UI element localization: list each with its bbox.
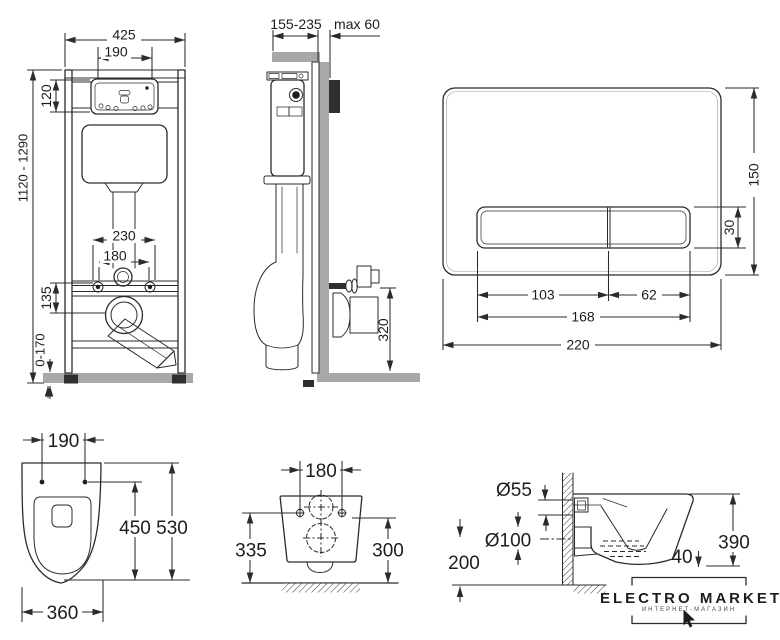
installation-diagram: 425 190 120 1120 - 1290 230 180 135 bbox=[0, 0, 780, 640]
dim-fixing-spread: 230 bbox=[112, 228, 136, 244]
dim-frame-overall-width: 425 bbox=[112, 27, 136, 43]
flush-plate-dimensions: 150 30 103 62 168 220 bbox=[443, 88, 762, 353]
dim-outlet-diameter: Ø100 bbox=[485, 531, 531, 552]
frame-foot-right bbox=[172, 375, 186, 384]
dim-rear-height-right: 300 bbox=[372, 541, 404, 562]
brand-logo: ELECTRO MARKET ИНТЕРНЕТ-МАГАЗИН bbox=[600, 578, 780, 628]
ceiling-bracket bbox=[272, 52, 320, 62]
logo-brand-text: ELECTRO MARKET bbox=[600, 590, 780, 607]
dim-drain-drop: 135 bbox=[38, 286, 54, 310]
threaded-rod bbox=[329, 283, 346, 289]
technical-drawing-sheet: 425 190 120 1120 - 1290 230 180 135 bbox=[0, 0, 780, 640]
dim-bowl-total-depth: 530 bbox=[156, 518, 188, 539]
bowl-trap-bump bbox=[307, 562, 333, 573]
dim-frame-upper-opening: 190 bbox=[104, 44, 128, 60]
flush-buttons bbox=[477, 207, 690, 248]
dim-plate-width: 220 bbox=[566, 337, 590, 353]
water-inlet-port bbox=[114, 268, 132, 286]
dim-buttons-width: 168 bbox=[571, 309, 595, 325]
dim-clearance: 40 bbox=[671, 547, 692, 568]
water-level bbox=[600, 541, 646, 557]
dim-fixing-spacing: 180 bbox=[103, 248, 127, 264]
logo-tagline-text: ИНТЕРНЕТ-МАГАЗИН bbox=[642, 607, 736, 613]
bowl-funnel bbox=[601, 506, 667, 550]
bowl-opening bbox=[34, 497, 91, 574]
inlet-connector bbox=[357, 266, 371, 287]
dim-button-left-width: 103 bbox=[531, 287, 555, 303]
dim-leg-adjust: 0-170 bbox=[33, 333, 48, 366]
dim-body-height: 390 bbox=[718, 533, 750, 554]
frame-rail-side bbox=[312, 62, 319, 373]
floor-section bbox=[317, 373, 420, 382]
flush-bend-pipe bbox=[254, 184, 303, 370]
wall-hatch bbox=[563, 473, 574, 585]
cistern-front bbox=[82, 125, 167, 183]
frame-front-view: 425 190 120 1120 - 1290 230 180 135 bbox=[16, 27, 194, 400]
frame-side-structure bbox=[254, 52, 420, 387]
flush-plate-view: 150 30 103 62 168 220 bbox=[443, 88, 762, 353]
dim-depth-range: 155-235 bbox=[270, 16, 322, 32]
bowl-side-dimensions: Ø55 Ø100 200 390 40 bbox=[448, 480, 752, 602]
dim-outlet-height: 320 bbox=[375, 318, 391, 342]
dim-wall-offset: max 60 bbox=[334, 16, 380, 32]
button-divider bbox=[608, 208, 611, 247]
dim-plate-height: 150 bbox=[746, 163, 762, 187]
dim-rear-fixing-spacing: 180 bbox=[305, 461, 337, 482]
dim-frame-height-range: 1120 - 1290 bbox=[16, 134, 31, 202]
dim-panel-height: 120 bbox=[38, 84, 54, 108]
dim-bowl-width: 360 bbox=[47, 603, 79, 624]
bowl-rear-dimensions: 180 335 300 bbox=[233, 460, 406, 584]
outlet-socket bbox=[575, 527, 592, 548]
bowl-rear-view: 180 335 300 bbox=[233, 460, 406, 593]
wall-section bbox=[319, 62, 329, 378]
dim-bowl-fixing-spacing: 190 bbox=[48, 431, 80, 452]
dim-outlet-axis-height: 200 bbox=[448, 553, 480, 574]
outlet-flange bbox=[333, 293, 350, 337]
outlet-pipe bbox=[350, 297, 378, 333]
bowl-inner-detail bbox=[52, 505, 72, 527]
dim-button-height: 30 bbox=[721, 220, 737, 236]
ground-hatch bbox=[282, 584, 360, 593]
dim-inlet-diameter: Ø55 bbox=[496, 480, 532, 501]
bowl-top-dimensions: 190 450 530 360 bbox=[22, 429, 190, 624]
frame-side-view: 155-235 max 60 320 bbox=[254, 16, 420, 387]
logo-bracket-top bbox=[632, 578, 746, 586]
inspection-window bbox=[91, 79, 158, 114]
dim-rear-height-left: 335 bbox=[235, 541, 267, 562]
bowl-side-view: Ø55 Ø100 200 390 40 bbox=[448, 473, 752, 602]
flush-valve bbox=[119, 91, 130, 96]
bowl-top-view: 190 450 530 360 bbox=[22, 429, 190, 624]
wall-mount-plate bbox=[329, 80, 340, 113]
dim-button-right-width: 62 bbox=[641, 287, 657, 303]
flush-plate-body bbox=[443, 88, 721, 275]
frame-foot-left bbox=[64, 375, 78, 384]
dim-bowl-inner-depth: 450 bbox=[119, 518, 151, 539]
